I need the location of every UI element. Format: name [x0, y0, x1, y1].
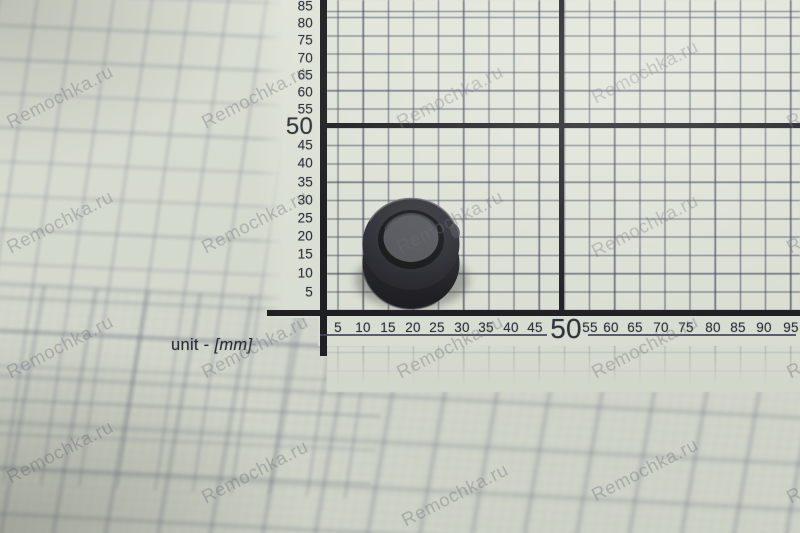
x-axis-label: 60: [603, 321, 618, 335]
x-axis-label: 95: [783, 321, 798, 335]
y-axis-label: 45: [298, 138, 313, 152]
x-axis-label: 85: [730, 321, 745, 335]
x-50-major-line: [559, 0, 564, 312]
y-axis-label-column: [258, 0, 327, 318]
x-axis-label: 20: [405, 321, 420, 335]
x-axis-label: 55: [582, 321, 597, 335]
x-axis-label: 25: [429, 321, 444, 335]
unit-caption-prefix: unit -: [171, 336, 209, 354]
x-axis-label: 80: [705, 321, 720, 335]
y-axis-label: 10: [298, 266, 313, 280]
x-axis-line: [267, 310, 800, 316]
x-axis-label: 65: [627, 321, 642, 335]
y-axis-label: 5: [305, 285, 313, 299]
y-axis-label: 60: [298, 85, 313, 99]
x-axis-label: 15: [380, 321, 395, 335]
y-axis-label: 15: [298, 247, 313, 261]
measurement-photo: 85 80 75 70 65 60 55 50 45 40 35 30 25 2…: [0, 0, 800, 533]
x-axis-label: 10: [355, 321, 370, 335]
y-axis-line: [320, 0, 327, 356]
y-axis-label: 20: [298, 229, 313, 243]
x-axis-label: 90: [756, 321, 771, 335]
y-axis-label: 85: [298, 0, 313, 13]
x-axis-label: 45: [527, 321, 542, 335]
x-axis-label: 5: [334, 321, 342, 335]
y-axis-label: 40: [298, 156, 313, 170]
y-50-major-line: [326, 123, 800, 128]
y-axis-major-label: 50: [286, 115, 313, 139]
y-axis-label: 80: [298, 16, 313, 30]
x-axis-major-label: 50: [550, 315, 582, 343]
y-axis-label: 75: [298, 33, 313, 47]
y-axis-label: 25: [298, 211, 313, 225]
